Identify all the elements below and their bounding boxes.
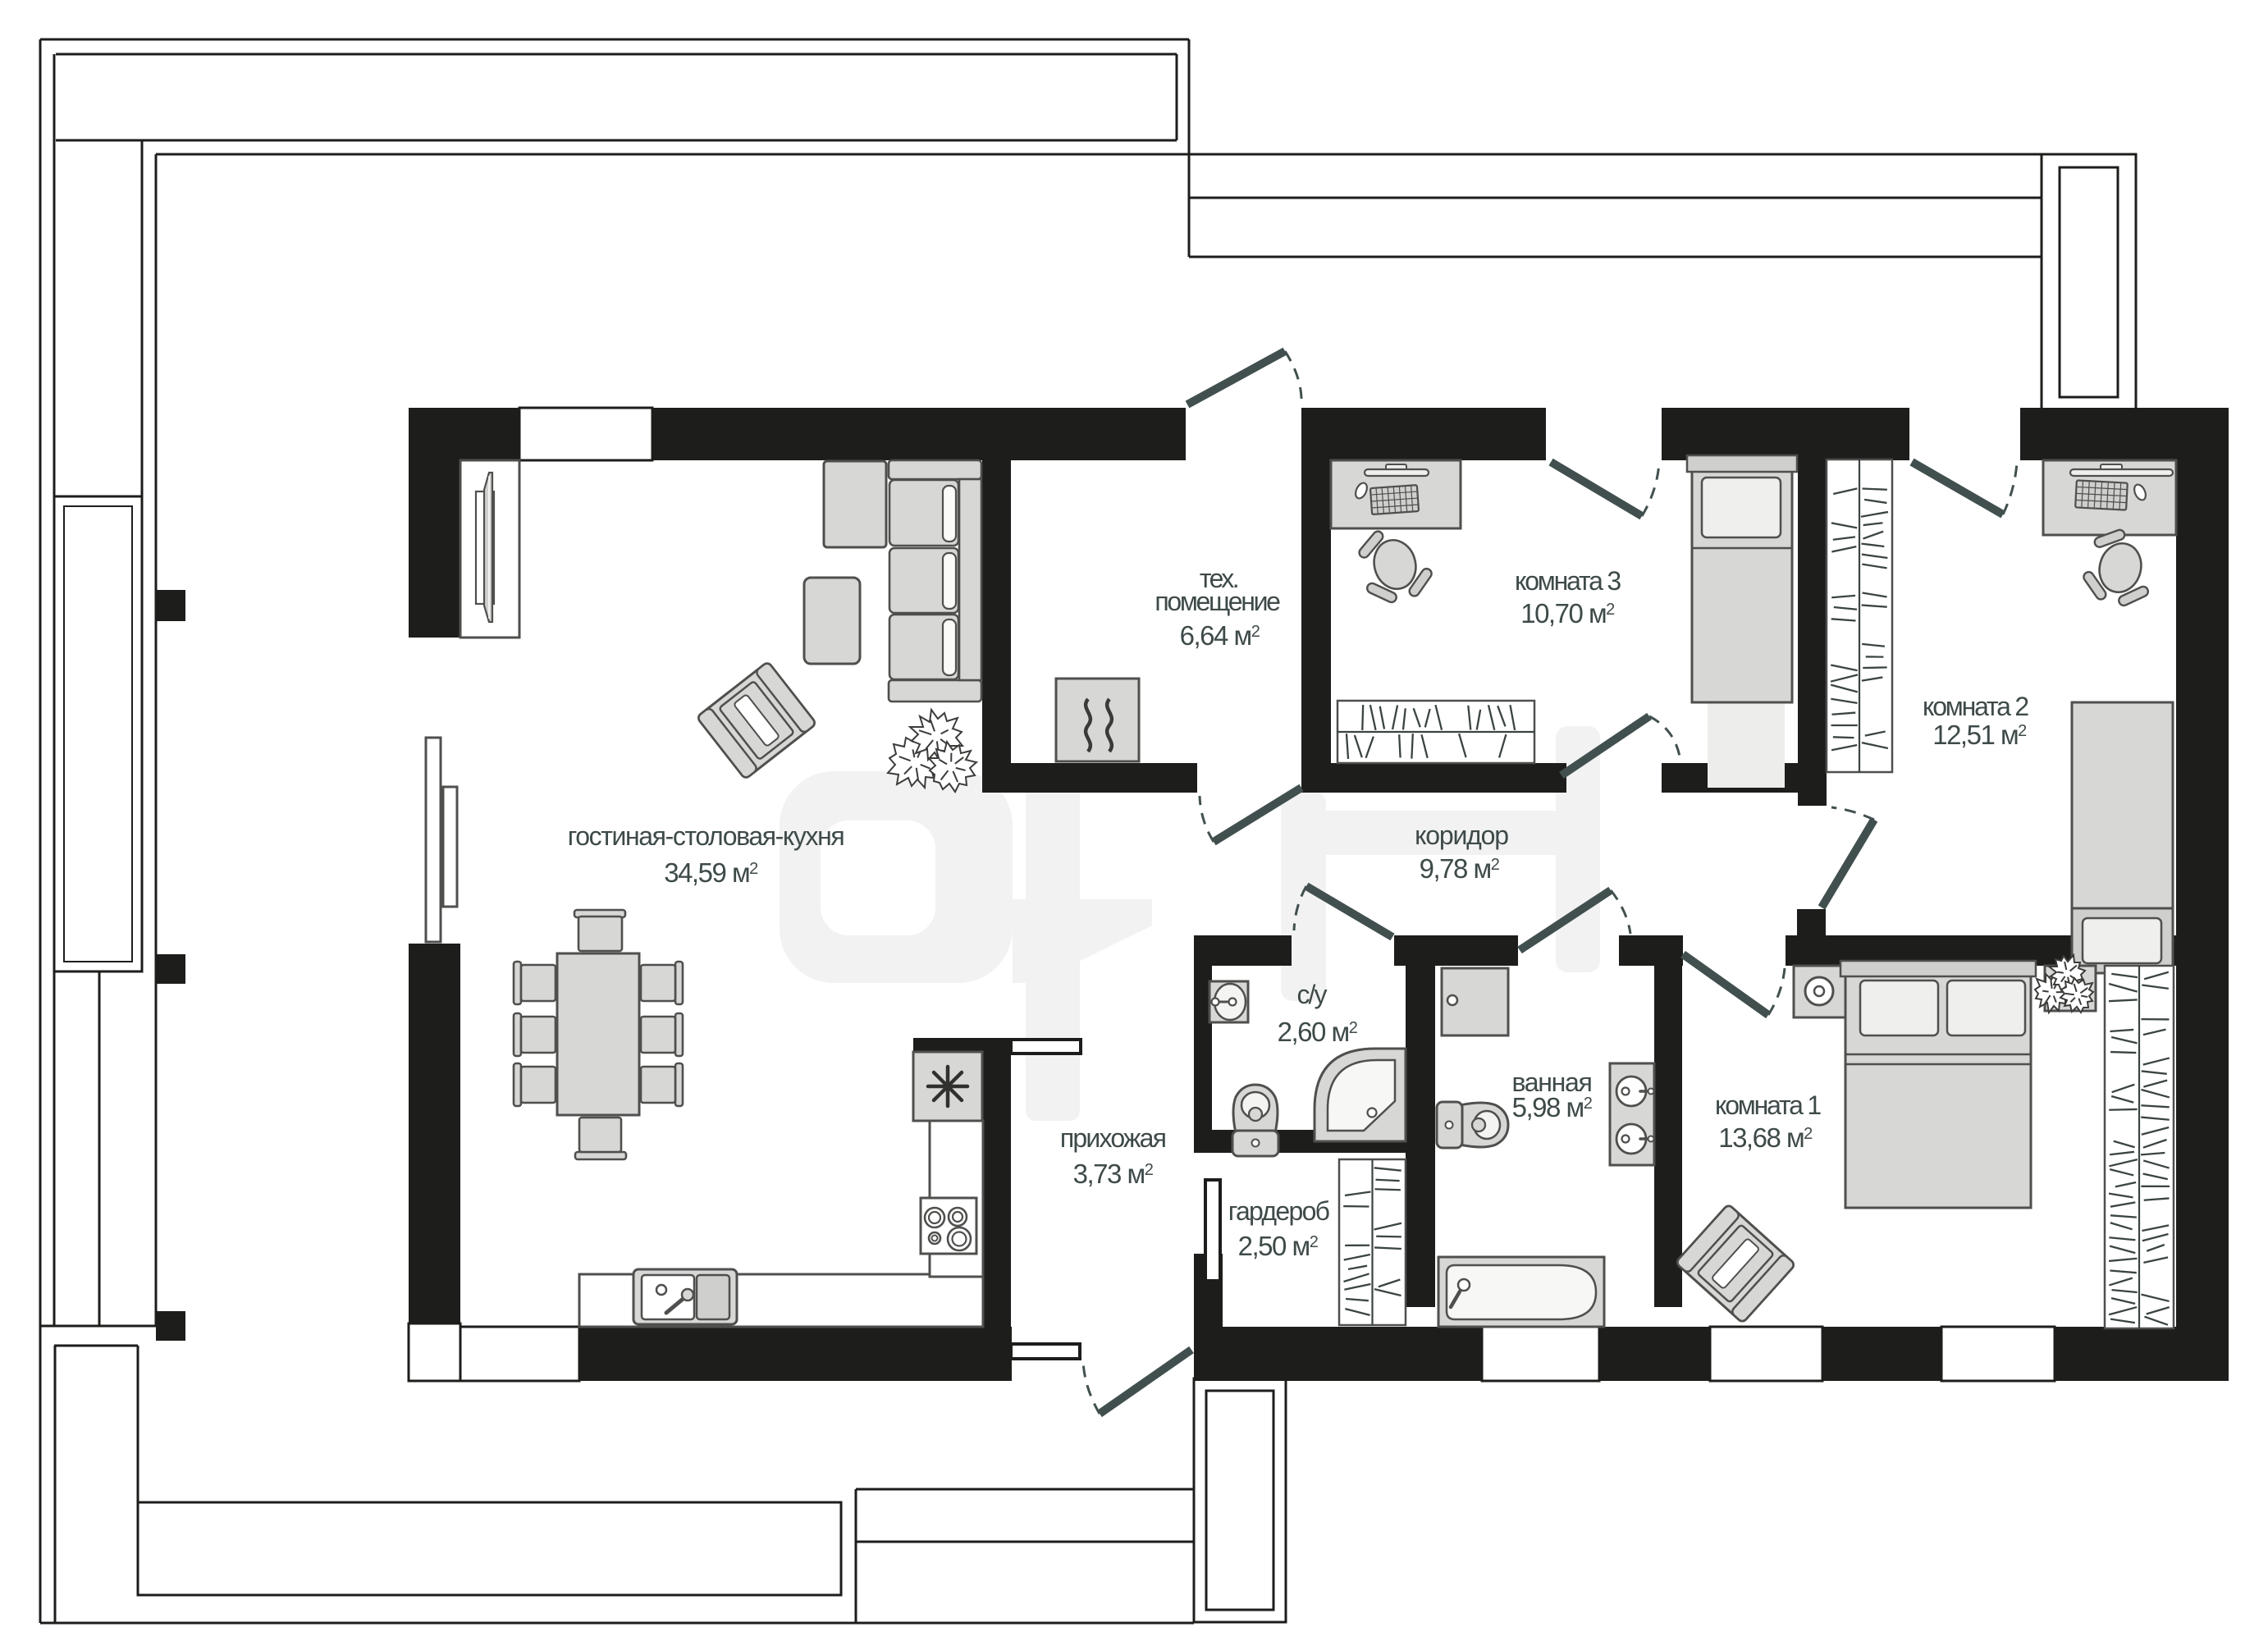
svg-text:коридор: коридор: [1415, 820, 1508, 850]
svg-text:комната 3: комната 3: [1515, 566, 1621, 596]
svg-text:комната 1: комната 1: [1715, 1090, 1821, 1120]
svg-text:с/у: с/у: [1297, 980, 1328, 1009]
svg-text:10,70 м2: 10,70 м2: [1520, 598, 1615, 629]
svg-text:9,78 м2: 9,78 м2: [1420, 853, 1500, 884]
svg-text:2,60 м2: 2,60 м2: [1278, 1017, 1358, 1047]
svg-text:3,73 м2: 3,73 м2: [1073, 1159, 1154, 1189]
svg-text:5,98 м2: 5,98 м2: [1512, 1092, 1593, 1122]
svg-text:2,50 м2: 2,50 м2: [1238, 1231, 1319, 1261]
svg-text:помещение: помещение: [1155, 587, 1280, 616]
svg-text:6,64 м2: 6,64 м2: [1180, 620, 1260, 651]
svg-text:гардероб: гардероб: [1228, 1196, 1329, 1226]
svg-text:гостиная-столовая-кухня: гостиная-столовая-кухня: [568, 821, 844, 851]
svg-text:комната 2: комната 2: [1923, 692, 2028, 721]
svg-text:12,51 м2: 12,51 м2: [1932, 720, 2027, 750]
svg-text:34,59 м2: 34,59 м2: [664, 857, 758, 888]
svg-text:13,68 м2: 13,68 м2: [1718, 1122, 1813, 1153]
svg-text:прихожая: прихожая: [1060, 1123, 1166, 1153]
